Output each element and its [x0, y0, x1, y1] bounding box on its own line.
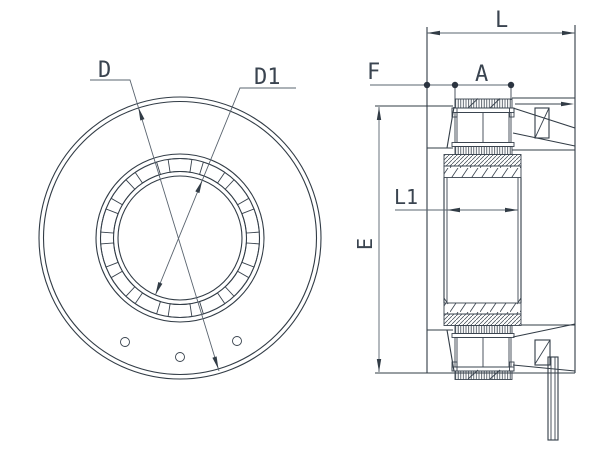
- dimension-dot: [508, 82, 514, 88]
- sleeve-hatch-bottom-sparse: [444, 303, 521, 314]
- race-strip-top: [452, 108, 514, 113]
- dimension-D1-label: D1: [254, 65, 281, 90]
- dimension-E-arrow-bottom: [377, 359, 381, 372]
- dimension-L: L: [427, 8, 575, 35]
- outer-ring-knurl-band-bottom: [455, 371, 512, 380]
- flange-taper-bottom-line: [447, 330, 454, 371]
- flange-outer-circle: [39, 97, 321, 379]
- dimension-L-label: L: [495, 8, 508, 33]
- flange-rim-inner-circle: [44, 102, 317, 375]
- dimension-D1-arrow-bottom: [155, 282, 162, 295]
- dimension-L1-arrow-right: [505, 208, 518, 212]
- bore-circle: [118, 176, 242, 300]
- inner-ring-knurl-band-top: [455, 147, 512, 155]
- dimension-F-label: F: [367, 60, 380, 85]
- dimension-D-arrow-bottom: [212, 356, 218, 369]
- dimension-dot: [452, 82, 458, 88]
- taper-diagonal-bottom-2: [513, 365, 575, 371]
- bearing-section-bottom: [452, 326, 514, 380]
- inner-ring-knurl-band-bottom: [455, 326, 512, 334]
- dimension-D-label: D: [98, 58, 111, 83]
- front-view: D D1: [39, 58, 321, 379]
- dimension-D-leader-line: [90, 80, 219, 371]
- set-screw-top: [535, 108, 549, 138]
- bearing-section-top: [452, 99, 514, 155]
- bearing-unit-drawing: D D1: [0, 0, 605, 450]
- dimension-L-arrow-left: [427, 31, 440, 35]
- dimension-E-arrow-top: [377, 107, 381, 120]
- outer-ring-knurl-band-top: [455, 99, 512, 108]
- dimension-L1-arrow-left: [447, 208, 460, 212]
- dimension-D1-leader-line: [155, 88, 296, 295]
- dimension-D1-arrow-top: [195, 180, 202, 193]
- race-strip-top-inner: [452, 143, 514, 147]
- mounting-hole: [121, 338, 130, 347]
- cage-slot: [168, 158, 192, 172]
- taper-diagonal-top-2: [513, 133, 575, 146]
- cage-outer-circle: [96, 154, 264, 322]
- flange-taper-top-line: [447, 107, 454, 148]
- race-strip-bottom-inner: [452, 334, 514, 338]
- dimension-L1-label: L1: [394, 185, 418, 209]
- dimension-E: E: [353, 107, 381, 372]
- dimension-A-label: A: [475, 62, 488, 87]
- race-step-right: [510, 362, 515, 371]
- adapter-sleeve: [444, 155, 521, 326]
- cage-outer-inner-circle: [101, 159, 260, 318]
- dimension-D: D: [90, 58, 219, 371]
- sleeve-hatch-top-dense: [444, 155, 521, 167]
- taper-diagonal-bottom-1: [513, 324, 575, 337]
- cage-slot: [168, 304, 192, 318]
- sleeve-hatch-bottom-dense: [444, 314, 521, 326]
- mounting-holes: [121, 337, 242, 362]
- drawing-canvas: D D1: [0, 0, 605, 450]
- dimension-L1: L1: [394, 185, 518, 212]
- dimension-D-arrow-top: [138, 108, 144, 121]
- dimension-D1: D1: [155, 65, 296, 295]
- race-strip-bottom: [452, 367, 514, 371]
- bearing-cage-ring: [96, 154, 264, 322]
- dimension-L-arrow-right: [562, 31, 575, 35]
- section-view: L F A E L1: [353, 8, 575, 440]
- grease-passage-arrow: [561, 102, 574, 106]
- dimension-dot: [424, 82, 430, 88]
- dimension-E-label: E: [353, 238, 377, 250]
- mounting-hole: [176, 353, 185, 362]
- cage-slots: [101, 158, 260, 317]
- sleeve-hatch-top-sparse: [444, 166, 521, 178]
- mounting-hole: [233, 337, 242, 346]
- cage-inner-circle: [114, 172, 247, 305]
- set-screw-top-diagonal: [535, 108, 549, 138]
